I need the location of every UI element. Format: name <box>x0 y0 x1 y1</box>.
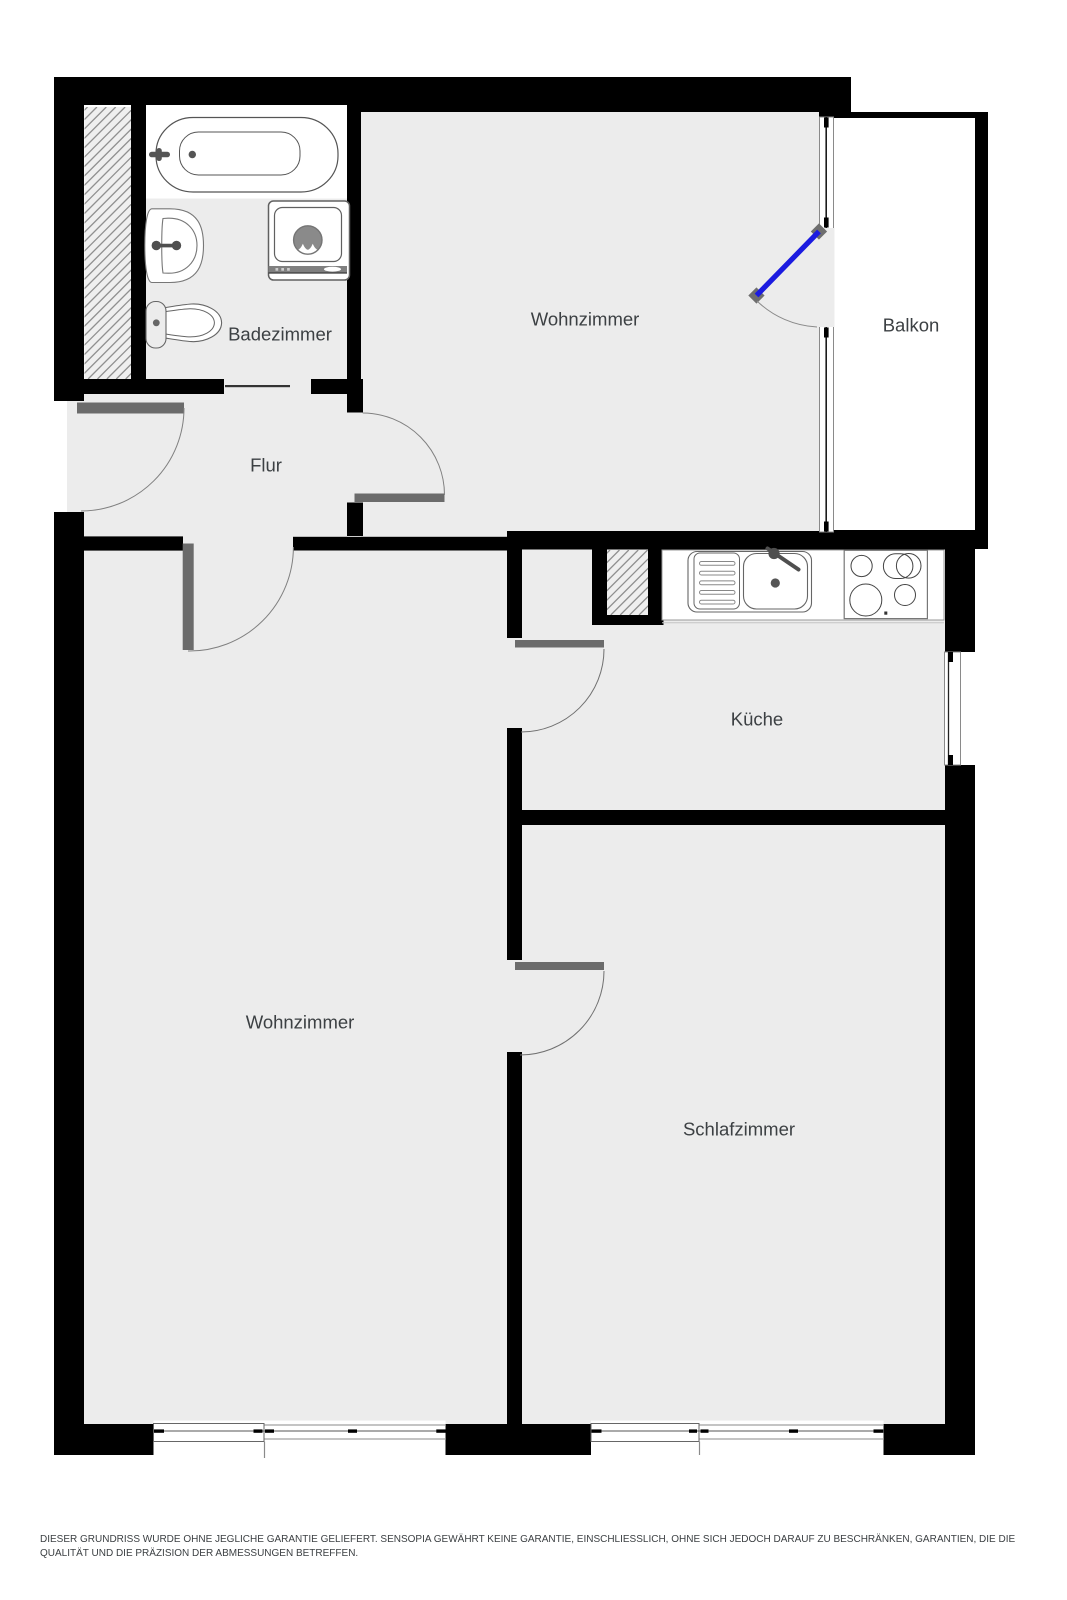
svg-text:Flur: Flur <box>250 455 282 476</box>
svg-text:Küche: Küche <box>731 709 783 730</box>
svg-text:DIESER GRUNDRISS WURDE OHNE JE: DIESER GRUNDRISS WURDE OHNE JEGLICHE GAR… <box>40 1533 1016 1545</box>
svg-text:QUALITÄT UND DIE PRÄZISION DER: QUALITÄT UND DIE PRÄZISION DER ABMESSUNG… <box>40 1547 358 1559</box>
svg-text:Balkon: Balkon <box>883 315 940 336</box>
svg-text:Wohnzimmer: Wohnzimmer <box>531 309 640 330</box>
svg-text:Wohnzimmer: Wohnzimmer <box>246 1012 355 1033</box>
svg-text:Badezimmer: Badezimmer <box>228 324 332 345</box>
svg-text:Schlafzimmer: Schlafzimmer <box>683 1119 795 1140</box>
